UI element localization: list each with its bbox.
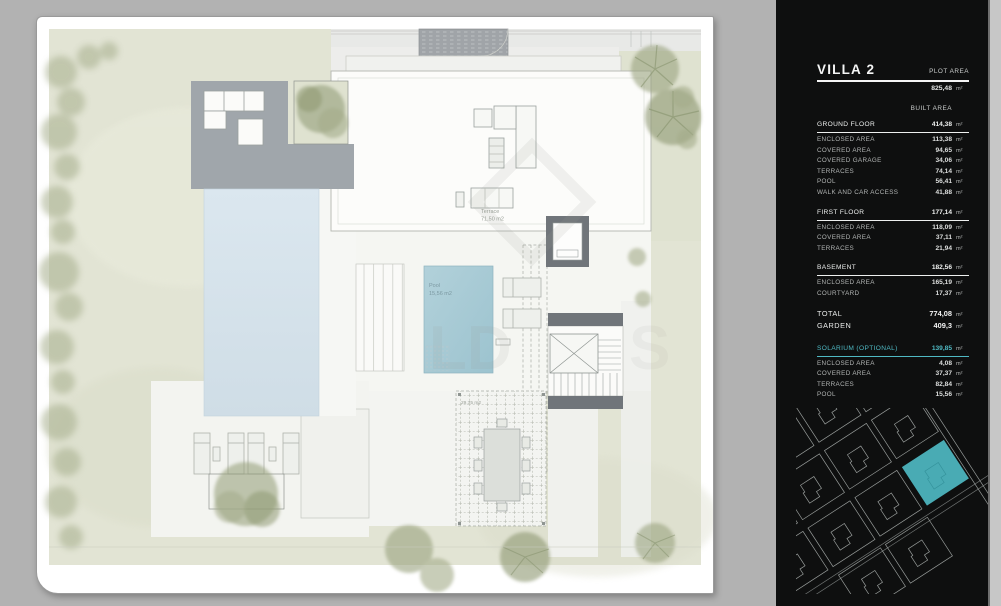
minimap-highlighted-plot (902, 440, 969, 506)
built-area-label: BUILT AREA (911, 105, 952, 112)
area-row: COVERED AREA37,11m² (817, 234, 969, 245)
section-header-row: SOLARIUM (OPTIONAL)139,85m² (817, 345, 969, 356)
plot-area-value: 825,48 (931, 85, 952, 92)
section-rule (817, 275, 969, 276)
floor-sections: GROUND FLOOR414,38m²ENCLOSED AREA113,38m… (817, 121, 969, 301)
section-header-row: FIRST FLOOR177,14m² (817, 209, 969, 220)
svg-text:LD: LD (429, 314, 512, 383)
spec-panel: VILLA 2 PLOT AREA 825,48 m² BUILT AREA G… (776, 0, 988, 606)
page-edge-strip (988, 0, 1001, 606)
area-row: ENCLOSED AREA118,09m² (817, 224, 969, 235)
area-row: TERRACES21,94m² (817, 245, 969, 256)
section-rule (817, 356, 969, 357)
section-header-row: BASEMENT182,56m² (817, 264, 969, 275)
location-minimap (796, 408, 988, 594)
total-row: GARDEN409,3m² (817, 321, 969, 334)
area-row: POOL56,41m² (817, 178, 969, 189)
pergola-area-label: 29,75 m2 (461, 400, 481, 406)
area-row: COVERED GARAGE34,06m² (817, 157, 969, 168)
section-rule (817, 220, 969, 221)
area-schedule: VILLA 2 PLOT AREA 825,48 m² BUILT AREA G… (817, 62, 969, 402)
area-row: COVERED AREA37,37m² (817, 370, 969, 381)
built-area-row: BUILT AREA (817, 105, 969, 112)
area-row: ENCLOSED AREA113,38m² (817, 136, 969, 147)
area-row: ENCLOSED AREA165,19m² (817, 279, 969, 290)
main-pool (204, 189, 319, 416)
area-row: TERRACES82,84m² (817, 381, 969, 392)
area-row: POOL15,56m² (817, 391, 969, 402)
pool-area-label: 15,56 m2 (429, 291, 452, 297)
title-rule (817, 80, 969, 82)
totals-block: TOTAL774,08m²GARDEN409,3m² (817, 309, 969, 334)
solarium-section: SOLARIUM (OPTIONAL)139,85m²ENCLOSED AREA… (817, 345, 969, 402)
area-row: ENCLOSED AREA4,08m² (817, 360, 969, 371)
plot-area-row: 825,48 m² (817, 85, 969, 92)
svg-text:S: S (629, 314, 670, 383)
total-row: TOTAL774,08m² (817, 309, 969, 322)
pool-label: Pool (429, 283, 440, 289)
area-row: COURTYARD17,37m² (817, 290, 969, 301)
area-row: COVERED AREA94,65m² (817, 147, 969, 158)
villa-title: VILLA 2 (817, 62, 929, 77)
section-rule (817, 132, 969, 133)
wood-deck (356, 264, 404, 371)
site-plan-drawing: Terrace 71,50 m2 Pool 15,56 m2 (37, 17, 713, 593)
section-header-row: GROUND FLOOR414,38m² (817, 121, 969, 132)
staircase (548, 313, 623, 409)
plot-area-label: PLOT AREA (929, 68, 969, 77)
area-row: WALK AND CAR ACCESS41,88m² (817, 189, 969, 200)
area-row: TERRACES74,14m² (817, 168, 969, 179)
plan-sheet: Terrace 71,50 m2 Pool 15,56 m2 (36, 16, 714, 594)
